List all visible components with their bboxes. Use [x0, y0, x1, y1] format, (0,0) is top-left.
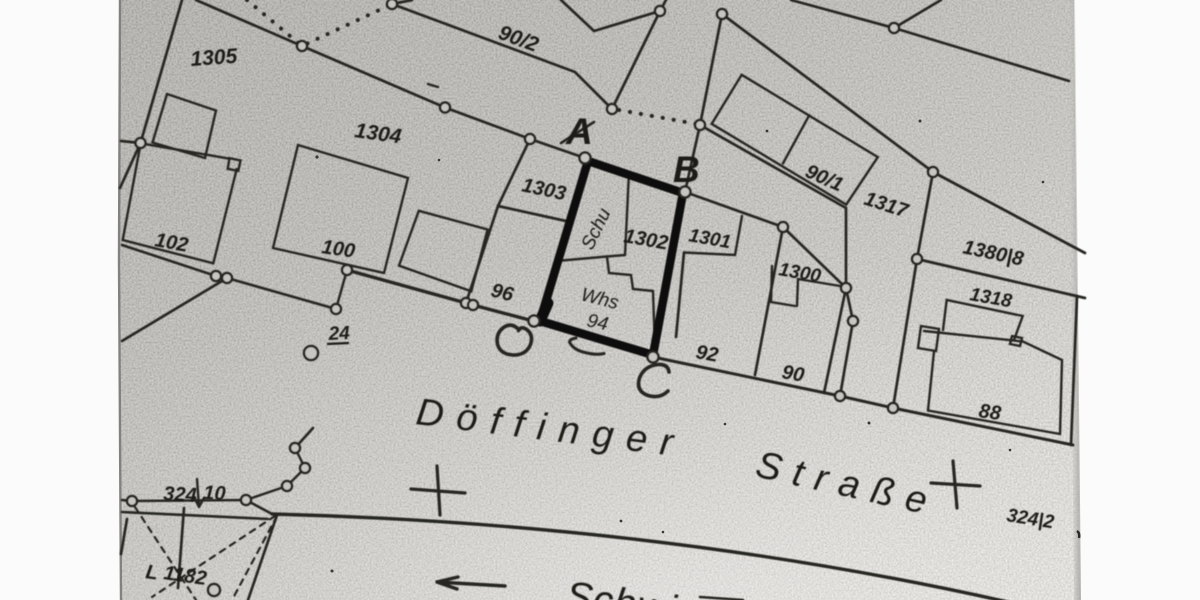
- svg-text:B: B: [673, 149, 700, 190]
- svg-text:94: 94: [585, 310, 610, 335]
- svg-text:10: 10: [203, 482, 226, 505]
- svg-text:24: 24: [327, 323, 351, 345]
- svg-text:100: 100: [320, 236, 356, 262]
- svg-text:A: A: [565, 111, 593, 152]
- svg-text:1305: 1305: [190, 45, 239, 71]
- svg-text:324: 324: [163, 483, 197, 507]
- svg-text:90: 90: [780, 361, 806, 387]
- svg-text:88: 88: [977, 400, 1003, 425]
- svg-text:92: 92: [694, 341, 720, 367]
